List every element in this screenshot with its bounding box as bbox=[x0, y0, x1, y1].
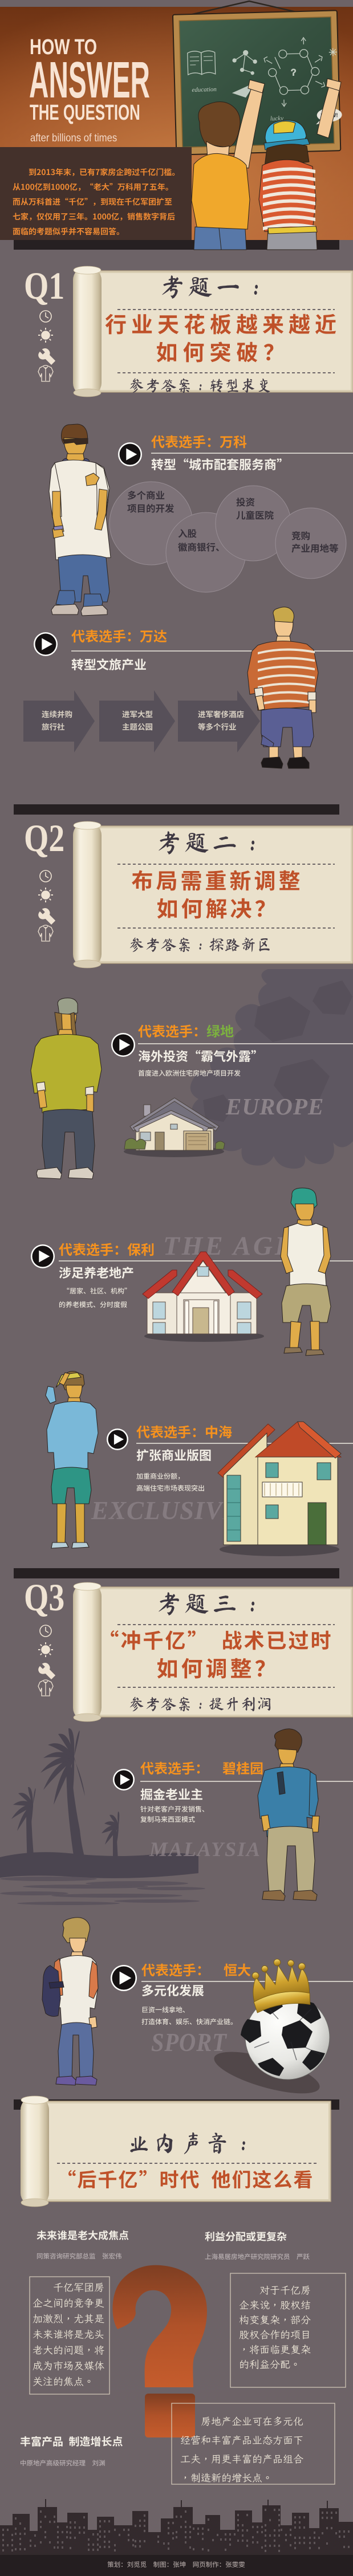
svg-text:SPORT: SPORT bbox=[151, 2029, 228, 2057]
svg-text:THE QUESTION: THE QUESTION bbox=[30, 100, 140, 124]
svg-text:?: ? bbox=[291, 68, 296, 78]
svg-text:Q3: Q3 bbox=[24, 1577, 64, 1619]
svg-text:EXCLUSIVE: EXCLUSIVE bbox=[91, 1496, 241, 1525]
svg-text:MALAYSIA: MALAYSIA bbox=[149, 1838, 261, 1861]
svg-text:Q1: Q1 bbox=[24, 265, 64, 307]
svg-text:after billions of times: after billions of times bbox=[30, 132, 117, 144]
svg-text:Q2: Q2 bbox=[24, 817, 64, 860]
svg-text:education: education bbox=[192, 86, 217, 93]
svg-text:EUROPE: EUROPE bbox=[225, 1093, 324, 1120]
